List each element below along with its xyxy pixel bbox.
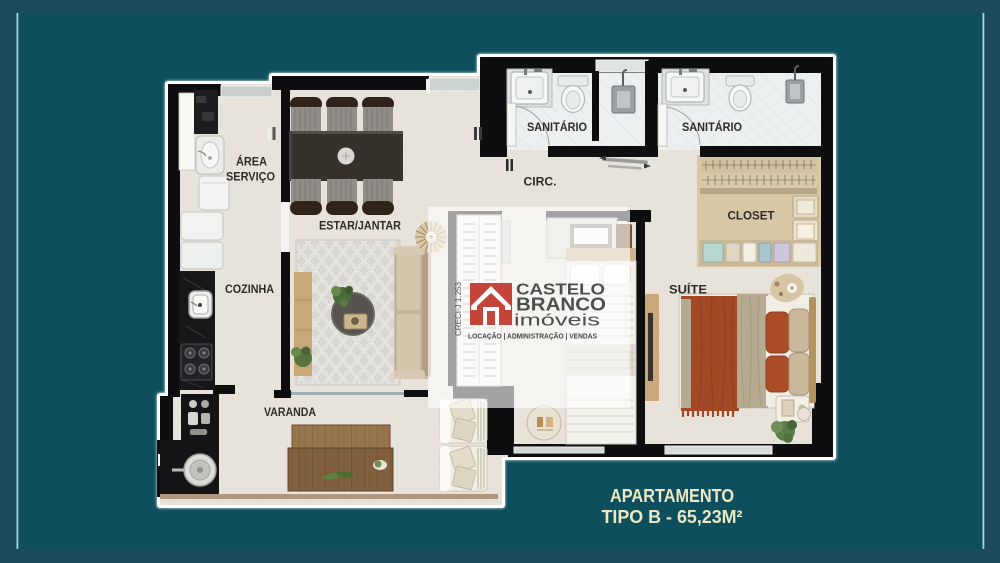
- svg-text:VARANDA: VARANDA: [264, 405, 316, 419]
- svg-text:SANITÁRIO: SANITÁRIO: [527, 119, 587, 134]
- svg-text:APARTAMENTO: APARTAMENTO: [610, 486, 734, 506]
- svg-text:imóveis: imóveis: [514, 312, 600, 330]
- svg-text:TIPO B - 65,23M²: TIPO B - 65,23M²: [602, 507, 743, 527]
- svg-text:CLOSET: CLOSET: [728, 209, 776, 223]
- svg-text:CIRC.: CIRC.: [524, 175, 557, 189]
- svg-text:SERVIÇO: SERVIÇO: [226, 170, 275, 184]
- svg-text:LOCAÇÃO | ADMINISTRAÇÃO | VEND: LOCAÇÃO | ADMINISTRAÇÃO | VENDAS: [468, 332, 597, 341]
- svg-text:COZINHA: COZINHA: [225, 282, 274, 296]
- svg-text:CRECI-J 1.253: CRECI-J 1.253: [453, 282, 463, 336]
- svg-text:SUÍTE: SUÍTE: [669, 282, 707, 297]
- svg-text:ÁREA: ÁREA: [236, 154, 267, 169]
- svg-text:SANITÁRIO: SANITÁRIO: [682, 119, 742, 134]
- svg-text:ESTAR/JANTAR: ESTAR/JANTAR: [319, 219, 401, 233]
